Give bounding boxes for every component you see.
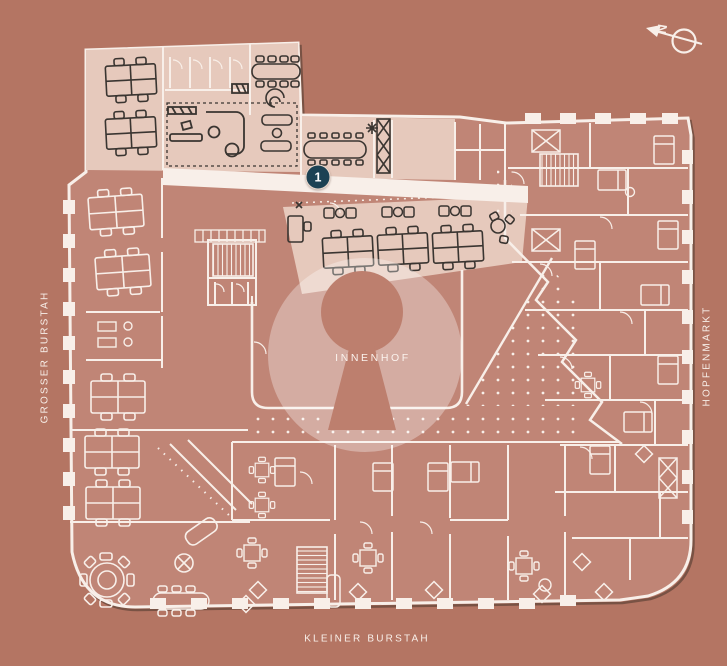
unit-marker-number: 1 [315, 170, 322, 184]
floor-plan-page: GROSSER BURSTAH HOPFENMARKT KLEINER BURS… [0, 0, 727, 666]
unit-marker-1[interactable]: 1 [306, 165, 331, 190]
courtyard-label: INNENHOF [335, 352, 411, 364]
floor-plan-drawing [0, 0, 727, 666]
street-label-hopfenmarkt: HOPFENMARKT [702, 306, 713, 407]
street-label-kleiner-burstah: KLEINER BURSTAH [304, 634, 430, 645]
street-label-grosser-burstah: GROSSER BURSTAH [40, 291, 51, 424]
